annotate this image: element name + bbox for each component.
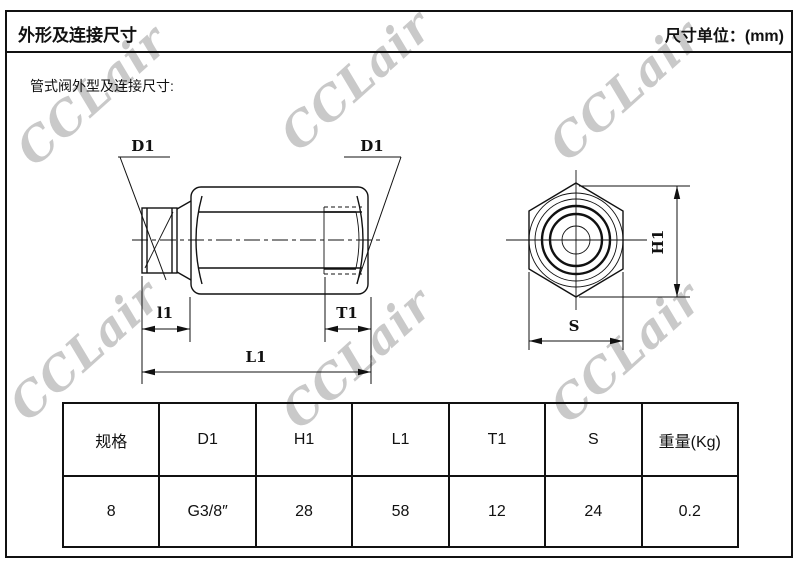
dim-label-t1: T1 <box>336 304 358 322</box>
table-row-cell: 58 <box>352 476 448 547</box>
page-title: 外形及连接尺寸 <box>18 21 137 46</box>
valve-side-view: D1 D1 l1 T1 L1 <box>118 137 401 384</box>
datasheet-page: CCLair CCLair CCLair CCLair CCLair CCLai… <box>0 0 800 569</box>
table-header-row: 规格D1H1L1T1S重量(Kg) <box>63 403 738 476</box>
table-row-cell: 24 <box>545 476 641 547</box>
table-header-row-cell: S <box>545 403 641 476</box>
table-header-row-cell: L1 <box>352 403 448 476</box>
drawing-caption: 管式阀外型及连接尺寸: <box>30 76 174 96</box>
table-row-cell: 28 <box>256 476 352 547</box>
table-row-cell: G3/8″ <box>159 476 255 547</box>
dim-label-h1: H1 <box>649 230 667 255</box>
table-header-row-cell: D1 <box>159 403 255 476</box>
dim-label-d1-left: D1 <box>131 137 154 155</box>
table-row-cell: 12 <box>449 476 545 547</box>
unit-label: 尺寸单位：(mm) <box>665 22 784 46</box>
table-header-row-cell: 重量(Kg) <box>642 403 738 476</box>
table-header-row-cell: T1 <box>449 403 545 476</box>
table-row: 8G3/8″285812240.2 <box>63 476 738 547</box>
dim-label-s: S <box>569 317 580 335</box>
dim-label-l1-total: L1 <box>246 348 267 366</box>
spec-table: 规格D1H1L1T1S重量(Kg)8G3/8″285812240.2 <box>62 402 739 548</box>
table-row-cell: 8 <box>63 476 159 547</box>
dim-label-d1-right: D1 <box>360 137 383 155</box>
table-header-row-cell: 规格 <box>63 403 159 476</box>
table-row-cell: 0.2 <box>642 476 738 547</box>
dim-label-l1: l1 <box>157 304 173 322</box>
table-header-row-cell: H1 <box>256 403 352 476</box>
valve-end-view: H1 S <box>506 170 690 350</box>
